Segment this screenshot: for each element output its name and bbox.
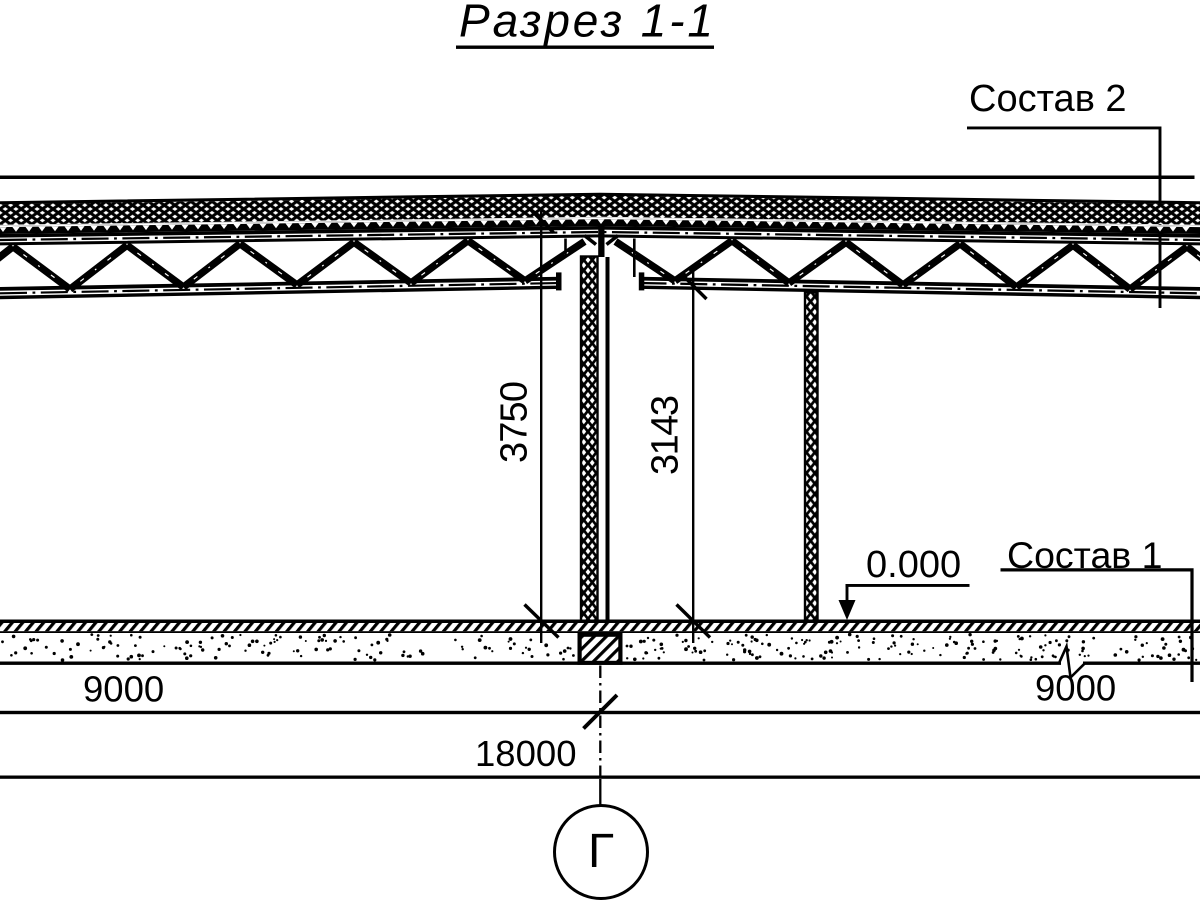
svg-text:9000: 9000 <box>83 669 164 710</box>
svg-text:18000: 18000 <box>475 733 577 774</box>
svg-text:3750: 3750 <box>494 381 536 463</box>
svg-text:9000: 9000 <box>1035 668 1116 709</box>
svg-text:0.000: 0.000 <box>866 544 961 586</box>
svg-text:Разрез 1-1: Разрез 1-1 <box>459 0 713 47</box>
svg-text:Состав 2: Состав 2 <box>969 78 1127 120</box>
svg-text:3143: 3143 <box>645 395 687 475</box>
svg-text:Г: Г <box>588 825 614 878</box>
